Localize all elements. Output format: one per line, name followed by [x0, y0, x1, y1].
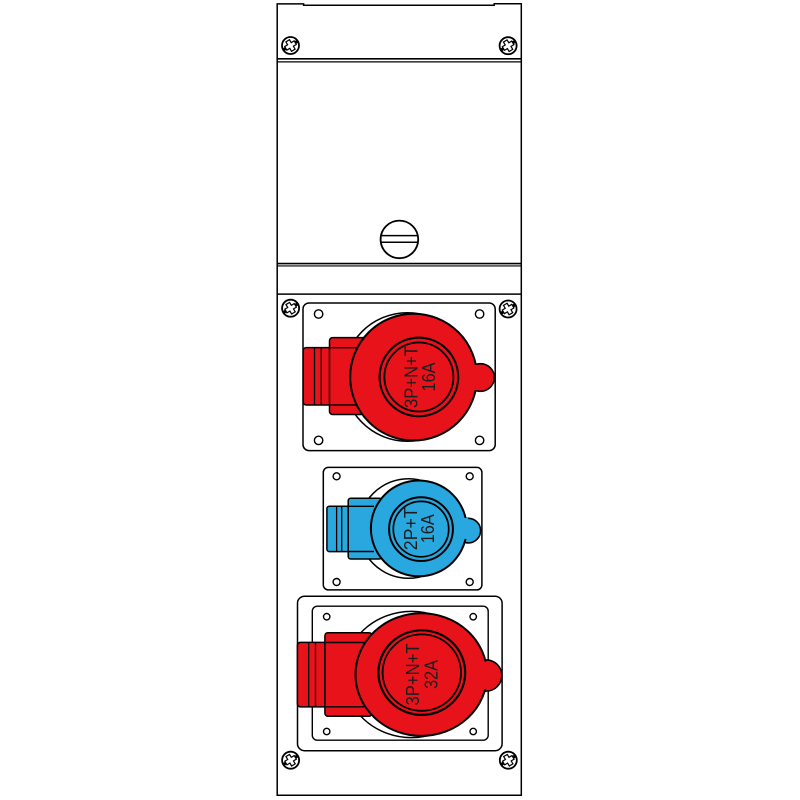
- svg-text:16A: 16A: [419, 363, 439, 392]
- svg-text:3P+N+T: 3P+N+T: [403, 644, 423, 706]
- svg-text:32A: 32A: [421, 660, 441, 689]
- svg-text:16A: 16A: [418, 514, 438, 543]
